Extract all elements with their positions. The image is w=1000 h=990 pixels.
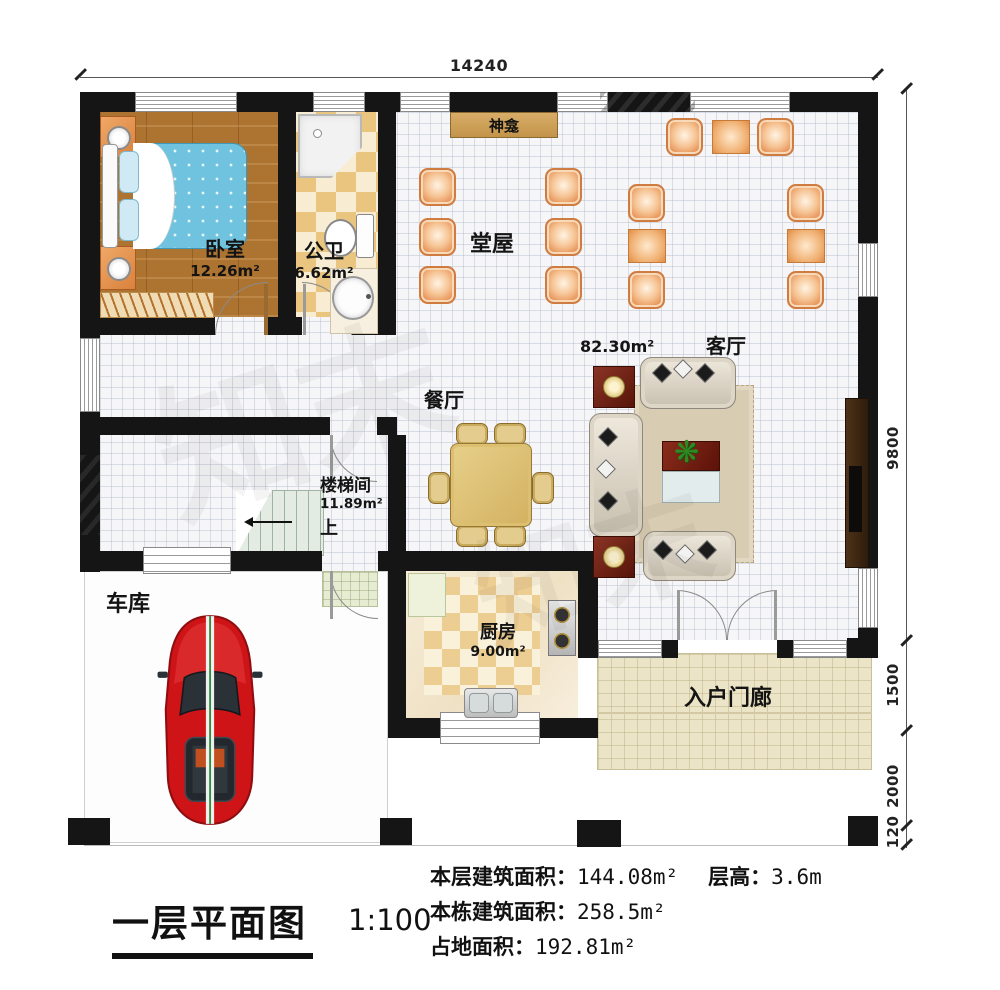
wardrobe-rack	[100, 292, 214, 318]
wall-stairwell-kitchen-west	[388, 435, 406, 718]
hall-chair	[419, 168, 456, 206]
kitchen-label: 厨房 9.00m²	[452, 618, 544, 660]
stat-value: 144.08m²	[577, 865, 678, 889]
column-south-garage	[380, 818, 412, 845]
living-area: 82.30m²	[580, 337, 654, 356]
tv-icon	[849, 466, 862, 532]
hall-chair	[419, 266, 456, 304]
porch-label: 入户门廊	[684, 680, 772, 712]
wall-kitchen-east	[578, 571, 598, 640]
living-label: 客厅	[706, 330, 746, 359]
bed-pillow	[119, 151, 139, 193]
hall-chair	[545, 218, 582, 256]
bed-headboard	[102, 144, 118, 248]
bedroom-area: 12.26m²	[183, 262, 267, 280]
column-south-middle	[577, 820, 621, 847]
window-bedroom-north	[135, 92, 237, 112]
hall-tea-table	[712, 120, 750, 154]
porch-column-left	[662, 640, 678, 658]
stairwell-name: 楼梯间	[320, 471, 383, 496]
column-southeast	[848, 816, 878, 846]
hall-chair	[545, 168, 582, 206]
window-hall-east	[858, 243, 878, 297]
lamp-icon	[107, 257, 131, 281]
bedroom-door-leaf	[264, 284, 268, 335]
dining-chair	[428, 472, 450, 504]
lamp-icon	[603, 376, 625, 398]
stat-value: 3.6m	[771, 865, 822, 889]
garage-steps	[143, 547, 231, 574]
dining-chair	[494, 423, 526, 445]
dining-chair	[494, 525, 526, 547]
wall-bedroom-south-b	[268, 317, 302, 335]
dimension-line-top	[80, 77, 878, 78]
sink-basin-icon	[469, 693, 489, 713]
dimension-right-1500: 1500	[884, 655, 900, 715]
stairwell-label: 楼梯间 11.89m² 上	[320, 471, 383, 540]
porch-joint-line	[597, 712, 872, 714]
sink-basin-icon	[493, 693, 513, 713]
window-living-east	[858, 568, 878, 628]
stat-label: 占地面积：	[430, 935, 535, 959]
bathroom-area: 6.62m²	[282, 264, 366, 282]
wall-garage-north-a	[80, 551, 145, 571]
dimension-right-120: 120	[884, 802, 900, 862]
dimension-top-value: 14240	[419, 56, 539, 75]
kitchen-name: 厨房	[452, 618, 544, 644]
dimension-right-9800: 9800	[884, 418, 900, 478]
hall-chair	[666, 118, 703, 156]
stairs-arrow-icon	[244, 517, 253, 527]
window-hall-north-c	[690, 92, 790, 112]
column-southwest	[68, 818, 110, 845]
stove-icon	[548, 600, 576, 656]
hall-tea-table	[787, 229, 825, 263]
hall-chair	[757, 118, 794, 156]
window-bathroom-north	[313, 92, 365, 112]
bed-pillow	[119, 199, 139, 241]
hall-chair	[545, 266, 582, 304]
wall-stairwell-north-a	[100, 417, 330, 435]
plant-icon: ❋	[674, 438, 699, 468]
page-title: 一层平面图	[112, 893, 313, 959]
dimension-line-right	[906, 90, 907, 848]
burner-icon	[554, 607, 570, 623]
lamp-icon	[603, 546, 625, 568]
scale-label: 1:100	[348, 903, 432, 937]
window-hall-north-a	[400, 92, 450, 112]
entry-door-left-leaf	[677, 590, 680, 640]
side-table	[593, 536, 635, 578]
hall-tea-table	[628, 229, 666, 263]
side-table	[593, 366, 635, 408]
hall-chair	[787, 184, 824, 222]
garage-label: 车库	[106, 586, 150, 618]
shower-drain-icon	[313, 129, 322, 138]
sofa-left	[589, 413, 643, 537]
stairs-direction-line	[252, 521, 292, 523]
watermark-hatch	[600, 92, 695, 112]
floor-plan-page: { "plan": { "dimensions": { "top": "1424…	[0, 0, 1000, 990]
stat-label: 层高：	[708, 865, 771, 889]
nightstand	[100, 246, 136, 290]
stat-row: 占地面积：192.81m²	[430, 930, 822, 965]
hall-label: 堂屋	[470, 226, 514, 258]
watermark-hatch	[80, 455, 100, 535]
stat-row: 本栋建筑面积：258.5m²	[430, 895, 822, 930]
bedroom-name: 卧室	[183, 233, 267, 262]
wall-bathroom-hall	[378, 112, 396, 335]
dining-chair	[532, 472, 554, 504]
wall-bedroom-bathroom	[278, 112, 296, 335]
entry-door-right-leaf	[774, 590, 777, 640]
wall-left-upper	[80, 92, 100, 338]
wall-garage-north-b	[230, 551, 322, 571]
garage-door-leaf	[330, 571, 333, 619]
window-living-south-a	[598, 640, 662, 658]
wall-living-south-b	[847, 638, 878, 658]
footer: 一层平面图 1:100 本层建筑面积：144.08m²层高：3.6m 本栋建筑面…	[0, 855, 1000, 990]
hall-chair	[419, 218, 456, 256]
wall-kitchen-north	[378, 551, 600, 571]
wall-bedroom-south-a	[100, 317, 215, 335]
stat-value: 258.5m²	[577, 900, 666, 924]
kitchen-area: 9.00m²	[452, 644, 544, 660]
window-living-south-b	[793, 640, 847, 658]
dimension-tick	[871, 68, 883, 80]
kitchen-mat	[408, 573, 446, 617]
stat-label: 本栋建筑面积：	[430, 900, 577, 924]
stat-label: 本层建筑面积：	[430, 865, 577, 889]
dining-chair	[456, 423, 488, 445]
stairwell-up: 上	[320, 514, 383, 540]
stairwell-area: 11.89m²	[320, 496, 383, 512]
wall-living-south-a	[578, 640, 598, 658]
shrine-label: 神龛	[489, 117, 519, 135]
bathroom-name: 公卫	[282, 235, 366, 264]
stat-row: 本层建筑面积：144.08m²层高：3.6m	[430, 860, 822, 895]
window-dining-west	[80, 338, 100, 412]
wall-kitchen-south-b	[540, 718, 598, 738]
porch-column-right	[777, 640, 793, 658]
hall-chair	[628, 271, 665, 309]
stats-block: 本层建筑面积：144.08m²层高：3.6m 本栋建筑面积：258.5m² 占地…	[430, 860, 822, 965]
burner-icon	[554, 633, 570, 649]
wall-kitchen-south-a	[388, 718, 440, 738]
dining-label: 餐厅	[424, 384, 464, 413]
kitchen-sink-icon	[464, 688, 518, 718]
bedroom-label: 卧室 12.26m²	[183, 233, 267, 280]
stat-value: 192.81m²	[535, 935, 636, 959]
bathroom-door-leaf	[303, 284, 306, 335]
ground-line	[84, 845, 878, 846]
car-icon	[152, 612, 268, 828]
dimension-tick	[74, 68, 86, 80]
dining-table	[450, 443, 532, 527]
coffee-table-glass	[662, 471, 720, 503]
wall-stairwell-north-b	[377, 417, 397, 435]
shrine-cabinet: 神龛	[450, 112, 558, 138]
bathroom-label: 公卫 6.62m²	[282, 235, 366, 282]
dining-chair	[456, 525, 488, 547]
wall-right-upper	[858, 92, 878, 243]
hall-chair	[787, 271, 824, 309]
hall-chair	[628, 184, 665, 222]
faucet-icon	[366, 294, 371, 299]
